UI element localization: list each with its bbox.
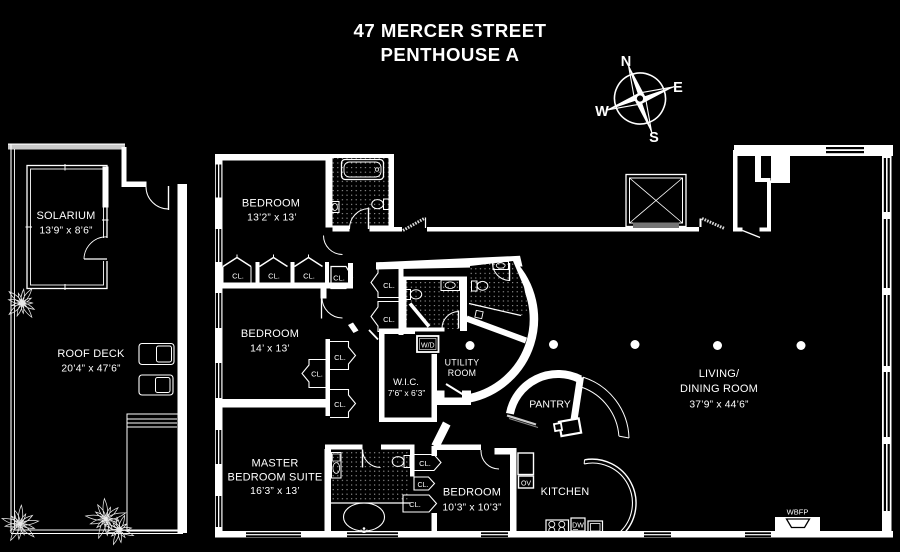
svg-text:DW: DW (572, 523, 584, 530)
svg-text:SOLARIUM: SOLARIUM (36, 210, 95, 222)
svg-text:37’9” x 44’6”: 37’9” x 44’6” (689, 400, 749, 411)
svg-text:CL.: CL. (303, 272, 315, 281)
svg-text:E: E (673, 80, 683, 96)
svg-text:N: N (621, 54, 631, 70)
svg-text:BEDROOM: BEDROOM (443, 487, 501, 499)
svg-text:BEDROOM: BEDROOM (241, 328, 299, 340)
svg-text:LIVING/: LIVING/ (699, 368, 740, 380)
svg-text:ROOF DECK: ROOF DECK (57, 348, 125, 360)
svg-text:BEDROOM SUITE: BEDROOM SUITE (228, 472, 323, 484)
svg-text:7’6” x 6’3”: 7’6” x 6’3” (388, 388, 425, 398)
svg-text:UTILITY: UTILITY (445, 358, 480, 368)
svg-text:20’4” x 47’6”: 20’4” x 47’6” (61, 364, 121, 375)
svg-text:CL.: CL. (334, 400, 346, 409)
svg-text:CL.: CL. (383, 315, 395, 324)
svg-text:47 MERCER STREET: 47 MERCER STREET (354, 20, 547, 41)
svg-text:CL.: CL. (334, 353, 346, 362)
svg-text:13’2” x 13’: 13’2” x 13’ (247, 213, 297, 224)
svg-text:W/D: W/D (421, 343, 435, 350)
svg-text:PENTHOUSE A: PENTHOUSE A (380, 44, 519, 65)
svg-text:16’3” x 13’: 16’3” x 13’ (250, 486, 300, 497)
svg-text:ROOM: ROOM (448, 368, 477, 378)
svg-text:CL.: CL. (418, 482, 429, 489)
svg-text:W.I.C.: W.I.C. (393, 377, 419, 388)
svg-text:MASTER: MASTER (251, 458, 298, 470)
svg-text:CL.: CL. (311, 370, 323, 379)
svg-text:CL.: CL. (419, 459, 431, 468)
svg-text:13’9” x 8’6”: 13’9” x 8’6” (39, 226, 93, 237)
svg-text:OV: OV (521, 481, 531, 488)
svg-text:CL.: CL. (409, 500, 421, 509)
svg-text:KITCHEN: KITCHEN (541, 486, 590, 498)
svg-text:BEDROOM: BEDROOM (242, 198, 300, 210)
svg-text:W: W (595, 104, 609, 120)
svg-text:10’3” x 10’3”: 10’3” x 10’3” (442, 503, 502, 514)
svg-text:DINING ROOM: DINING ROOM (680, 383, 758, 395)
svg-text:WBFP: WBFP (787, 508, 809, 517)
svg-text:CL.: CL. (383, 281, 395, 290)
svg-text:S: S (649, 130, 659, 146)
svg-text:CL.: CL. (268, 272, 280, 281)
svg-text:CL.: CL. (232, 272, 244, 281)
svg-text:14’ x 13’: 14’ x 13’ (250, 344, 290, 355)
svg-text:CL.: CL. (333, 274, 345, 283)
svg-text:PANTRY: PANTRY (529, 399, 571, 411)
